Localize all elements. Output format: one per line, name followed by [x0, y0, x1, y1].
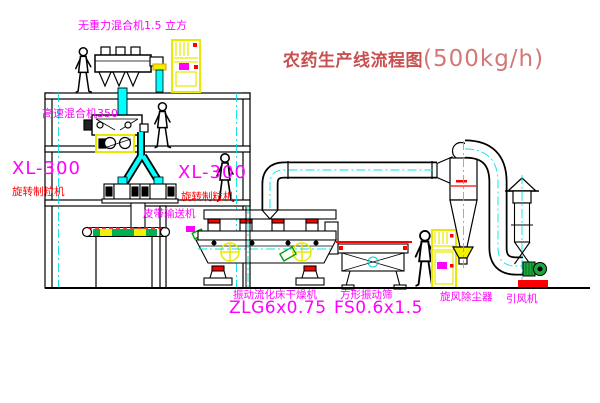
exhaust-duct-drawing [270, 161, 437, 212]
cabinet-label-mark [437, 262, 447, 269]
indicator-dot [193, 43, 197, 47]
person-figure-2 [155, 103, 171, 148]
control-cabinet-1 [172, 40, 200, 92]
label-fan: 引风机 [506, 294, 538, 305]
label-high-speed-mixer: 高速混合机350 [42, 108, 118, 119]
label-sieve-model: FS0.6x1.5 [334, 300, 423, 317]
label-granulator-left-model: XL-300 [12, 160, 81, 178]
indicator-dot [450, 264, 454, 268]
label-granulator-right-name: 旋转制粒机 [181, 192, 234, 203]
person-figure-1 [76, 48, 92, 92]
label-granulator-left-name: 旋转制粒机 [12, 187, 65, 198]
belt-conveyor-drawing [83, 226, 204, 288]
fan-base [518, 280, 548, 287]
gravity-mixer-drawing [95, 47, 166, 92]
induced-draft-fan-drawing [518, 262, 548, 287]
flow-diagram-canvas: 农药生产线流程图(500kg/h) 无重力混合机1.5 立方 高速混合机350 … [0, 0, 600, 403]
indicator-dot [450, 234, 454, 238]
feeder-mark [186, 226, 195, 232]
label-gravity-mixer: 无重力混合机1.5 立方 [78, 20, 187, 31]
fluid-bed-dryer-drawing [196, 210, 336, 285]
label-belt-conveyor: 皮带输送机 [143, 209, 196, 220]
control-cabinet-2 [432, 230, 456, 288]
label-dryer-model: ZLG6x0.75 [229, 300, 327, 317]
vibrating-sieve-drawing [336, 242, 412, 289]
title-capacity: (500kg/h) [423, 46, 544, 72]
page-title: 农药生产线流程图(500kg/h) [283, 48, 544, 71]
indicator-dot [194, 65, 198, 69]
granulator-drawing [102, 177, 178, 228]
title-text: 农药生产线流程图 [283, 51, 423, 71]
label-cyclone: 旋风除尘器 [440, 292, 493, 303]
cabinet-label-mark [179, 63, 189, 70]
label-granulator-right-model: XL-300 [178, 164, 247, 182]
